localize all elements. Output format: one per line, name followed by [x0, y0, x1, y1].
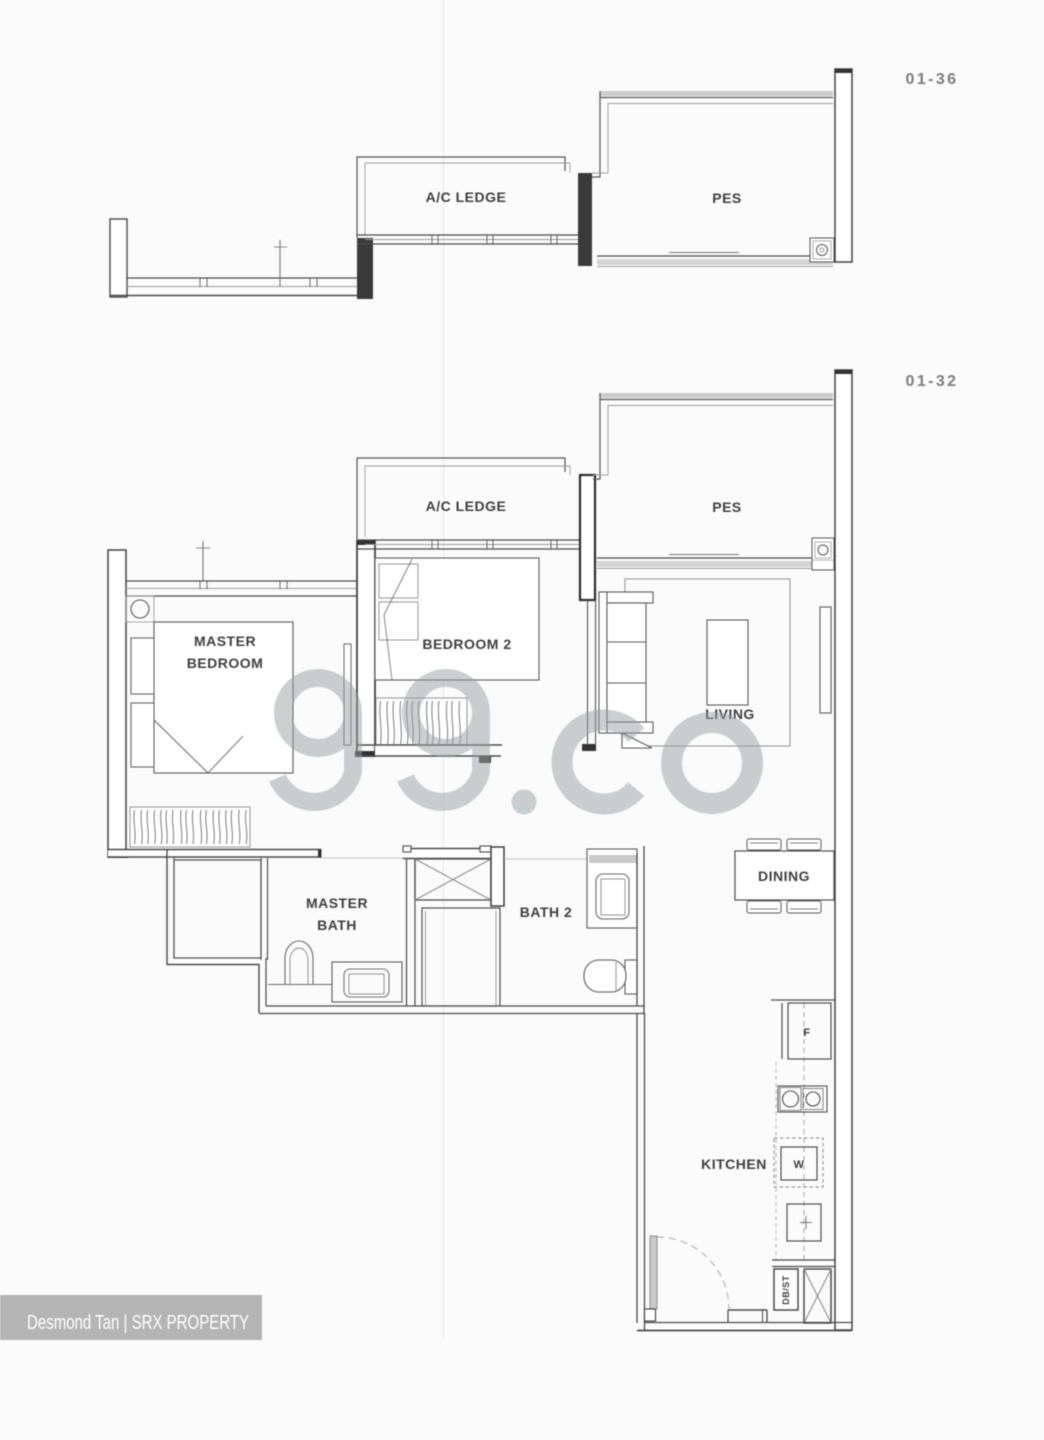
- svg-text:01-32: 01-32: [906, 373, 959, 390]
- svg-text:MASTER: MASTER: [306, 895, 368, 911]
- svg-text:A/C LEDGE: A/C LEDGE: [426, 498, 507, 514]
- svg-text:MASTER: MASTER: [194, 633, 256, 649]
- svg-text:BATH: BATH: [317, 917, 357, 933]
- svg-text:Desmond Tan | SRX PROPERTY: Desmond Tan | SRX PROPERTY: [27, 1312, 249, 1334]
- svg-text:DINING: DINING: [758, 868, 810, 884]
- svg-text:BATH 2: BATH 2: [520, 904, 573, 920]
- svg-text:BEDROOM: BEDROOM: [187, 655, 264, 671]
- svg-text:W: W: [794, 1159, 805, 1171]
- svg-text:DB/ST: DB/ST: [781, 1275, 791, 1305]
- svg-text:PES: PES: [712, 190, 742, 206]
- svg-text:KITCHEN: KITCHEN: [701, 1156, 767, 1172]
- svg-text:BEDROOM 2: BEDROOM 2: [422, 636, 511, 652]
- svg-text:A/C LEDGE: A/C LEDGE: [426, 189, 507, 205]
- svg-text:PES: PES: [712, 499, 742, 515]
- svg-text:F: F: [803, 1027, 810, 1039]
- svg-text:01-36: 01-36: [906, 71, 959, 88]
